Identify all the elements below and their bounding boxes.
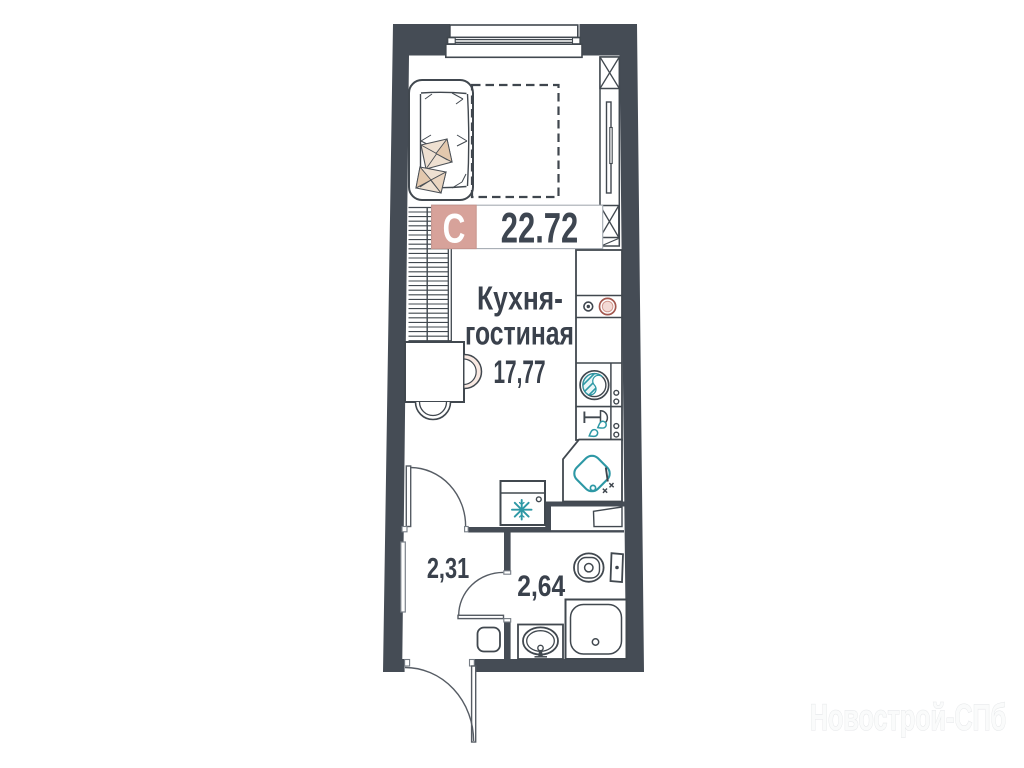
svg-text:17,77: 17,77 [493, 355, 545, 391]
svg-text:гостиная: гостиная [465, 316, 574, 352]
svg-text:2,31: 2,31 [427, 553, 469, 585]
svg-text:Новострой-СПб: Новострой-СПб [810, 696, 1006, 738]
svg-text:2,64: 2,64 [517, 569, 566, 603]
svg-text:С: С [443, 204, 466, 252]
svg-text:Кухня-: Кухня- [477, 281, 563, 317]
svg-text:22.72: 22.72 [501, 203, 578, 251]
